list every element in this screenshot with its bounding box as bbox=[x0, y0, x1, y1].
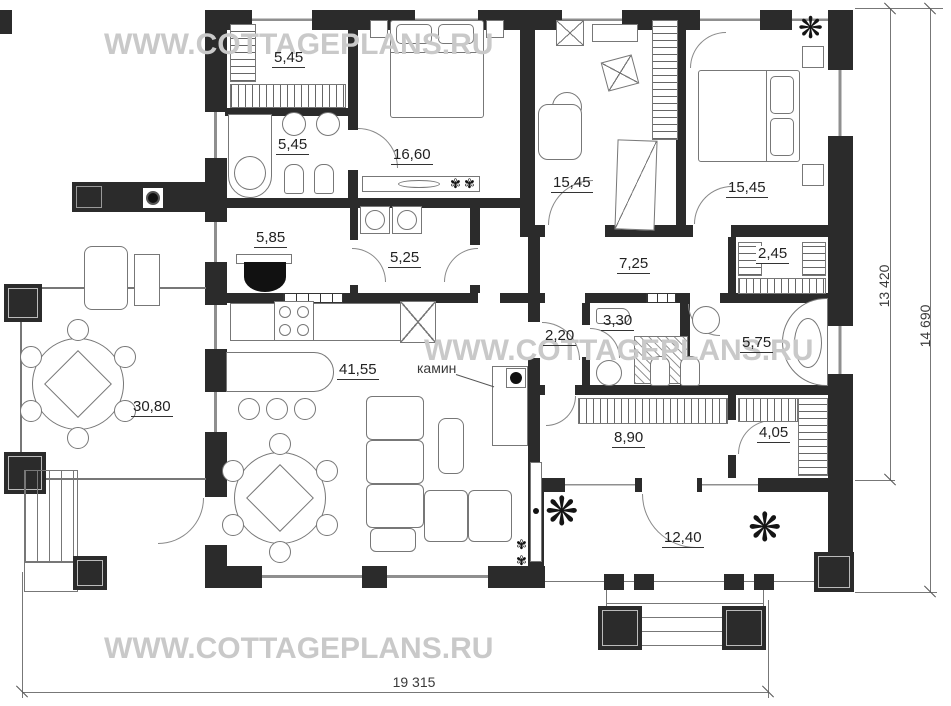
closet-hatch bbox=[652, 20, 678, 140]
sofa-cushion bbox=[468, 490, 512, 542]
room-label-bathroom-1: 5,45 bbox=[276, 137, 309, 155]
stair-landing bbox=[24, 562, 78, 592]
room-label-porch: 12,40 bbox=[662, 530, 704, 548]
wall-bottom-living bbox=[205, 566, 545, 588]
washing-machine-drum bbox=[397, 210, 417, 230]
bar-stool bbox=[238, 398, 260, 420]
chair bbox=[114, 346, 136, 368]
sink bbox=[692, 306, 720, 334]
porch-column bbox=[722, 606, 766, 650]
porch-pier bbox=[604, 574, 624, 590]
porch-pier bbox=[634, 574, 654, 590]
column bbox=[73, 556, 107, 590]
plant-icon: ❋ bbox=[545, 492, 579, 532]
room-label-wardrobe-1: 5,45 bbox=[272, 50, 305, 68]
porch-column bbox=[814, 552, 854, 592]
wall-int bbox=[520, 10, 535, 237]
window bbox=[252, 10, 312, 30]
burner bbox=[297, 306, 309, 318]
room-label-entrance-hall: 8,90 bbox=[612, 430, 645, 448]
porch-pier bbox=[724, 574, 744, 590]
sink bbox=[282, 112, 306, 136]
watermark-bottom: WWW.COTTAGEPLANS.RU bbox=[104, 632, 493, 666]
door-opening bbox=[728, 420, 736, 455]
outdoor-table bbox=[134, 254, 160, 306]
desk bbox=[592, 24, 638, 42]
dimension-line bbox=[930, 8, 931, 592]
door-opening bbox=[545, 225, 605, 237]
closet-hatch bbox=[802, 242, 826, 276]
dimension-width-bottom: 19 315 bbox=[390, 674, 438, 690]
window bbox=[205, 305, 227, 349]
coffee-table bbox=[438, 418, 464, 474]
window bbox=[828, 326, 853, 374]
chair bbox=[316, 460, 338, 482]
room-label-shower-room: 3,30 bbox=[601, 313, 634, 331]
window bbox=[262, 566, 362, 588]
dimension-line bbox=[22, 692, 768, 693]
terrace-column bbox=[4, 284, 42, 322]
fireplace-leader-line bbox=[456, 374, 494, 387]
corner-arc bbox=[690, 32, 726, 68]
toilet bbox=[314, 164, 334, 194]
cabinet bbox=[601, 54, 640, 91]
window bbox=[700, 10, 760, 30]
room-label-wardrobe-2: 2,45 bbox=[756, 246, 789, 264]
closet-hatch bbox=[578, 398, 728, 424]
room-label-bedroom-2: 15,45 bbox=[726, 180, 768, 198]
wall-stub-topleft bbox=[0, 10, 12, 34]
chair bbox=[269, 433, 291, 455]
sink bbox=[316, 112, 340, 136]
burner bbox=[279, 324, 291, 336]
floor-plan: ✾ ✾ ❋ ✾ ✾ bbox=[0, 0, 951, 706]
kitchen-counter bbox=[230, 303, 422, 341]
nightstand bbox=[802, 164, 824, 186]
sofa-cushion bbox=[366, 440, 424, 484]
chair bbox=[20, 400, 42, 422]
nightstand bbox=[802, 46, 824, 68]
room-label-terrace: 30,80 bbox=[131, 399, 173, 417]
bar-counter bbox=[226, 352, 334, 392]
plant-icon: ❋ bbox=[798, 14, 823, 44]
room-label-boiler-room: 5,85 bbox=[254, 230, 287, 248]
room-label-hallway: 7,25 bbox=[617, 256, 650, 274]
pillow bbox=[770, 76, 794, 114]
fireplace-flue-circle bbox=[510, 372, 522, 384]
room-label-bedroom-1: 16,60 bbox=[391, 147, 433, 165]
chimney-column bbox=[76, 186, 102, 208]
boiler-fireplace bbox=[244, 262, 286, 292]
bar-stool bbox=[294, 398, 316, 420]
dimension-height-outer: 14 690 bbox=[917, 302, 933, 350]
burner bbox=[297, 324, 309, 336]
toilet bbox=[284, 164, 304, 194]
chair bbox=[67, 319, 89, 341]
wall-int bbox=[728, 237, 736, 293]
porch-pier bbox=[754, 574, 774, 590]
extension-line bbox=[768, 600, 769, 698]
flower-icon: ✾ bbox=[464, 177, 475, 190]
closet-hatch bbox=[798, 398, 828, 476]
chair bbox=[222, 460, 244, 482]
flower-icon: ✾ bbox=[450, 177, 461, 190]
chair bbox=[67, 427, 89, 449]
fireplace-label: камин bbox=[417, 360, 456, 376]
room-label-hall: 2,20 bbox=[543, 328, 576, 346]
door-opening bbox=[478, 293, 500, 303]
door-opening bbox=[348, 130, 358, 170]
flower-icon: ✾ bbox=[516, 538, 527, 551]
room-label-bathroom-2: 5,75 bbox=[740, 335, 773, 353]
flower-icon: ✾ bbox=[516, 554, 527, 567]
closet-hatch bbox=[230, 84, 346, 108]
closet-hatch bbox=[738, 278, 826, 294]
dimension-line bbox=[890, 8, 891, 480]
door-opening bbox=[545, 385, 575, 395]
door-opening bbox=[690, 293, 720, 303]
door-opening bbox=[693, 225, 731, 237]
bar-stool bbox=[266, 398, 288, 420]
burner bbox=[279, 306, 291, 318]
chair bbox=[20, 346, 42, 368]
plant-icon: ❋ bbox=[748, 508, 782, 548]
window bbox=[702, 478, 758, 492]
bathtub-bowl bbox=[234, 156, 266, 190]
window bbox=[205, 222, 227, 262]
door-swing bbox=[546, 396, 576, 426]
door-swing bbox=[352, 248, 386, 282]
pillow bbox=[770, 118, 794, 156]
mirror bbox=[398, 180, 440, 188]
dimension-height-inner: 13 420 bbox=[876, 262, 892, 310]
door-knob bbox=[533, 508, 539, 514]
washing-machine-drum bbox=[365, 210, 385, 230]
extension-line bbox=[22, 572, 23, 698]
porch-column bbox=[598, 606, 642, 650]
stairs bbox=[24, 470, 78, 562]
chair bbox=[316, 514, 338, 536]
sofa-cushion bbox=[424, 490, 468, 542]
porch-edge bbox=[545, 581, 828, 582]
ottoman bbox=[370, 528, 416, 552]
glass-block-strip bbox=[646, 293, 676, 303]
window bbox=[387, 566, 488, 588]
chair bbox=[269, 541, 291, 563]
door-opening bbox=[545, 293, 585, 303]
closet-hatch bbox=[738, 398, 798, 422]
door-swing bbox=[158, 498, 204, 544]
room-label-living-room: 41,55 bbox=[337, 362, 379, 380]
room-label-laundry: 5,25 bbox=[388, 250, 421, 268]
cabinet bbox=[556, 20, 584, 46]
armchair bbox=[538, 104, 582, 160]
room-label-wardrobe-3: 4,05 bbox=[757, 425, 790, 443]
chaise bbox=[614, 139, 657, 230]
sofa-cushion bbox=[366, 484, 424, 528]
outdoor-sofa bbox=[84, 246, 128, 310]
blanket-line bbox=[766, 71, 767, 161]
window bbox=[205, 392, 227, 432]
door-swing bbox=[444, 248, 478, 282]
chair bbox=[222, 514, 244, 536]
door-opening bbox=[642, 478, 697, 492]
extension-line bbox=[855, 592, 937, 593]
window bbox=[205, 112, 227, 158]
window bbox=[828, 70, 853, 136]
sofa-cushion bbox=[366, 396, 424, 440]
wall-int bbox=[535, 385, 853, 395]
room-label-office: 15,45 bbox=[551, 175, 593, 193]
chimney-vent-circle bbox=[146, 191, 160, 205]
